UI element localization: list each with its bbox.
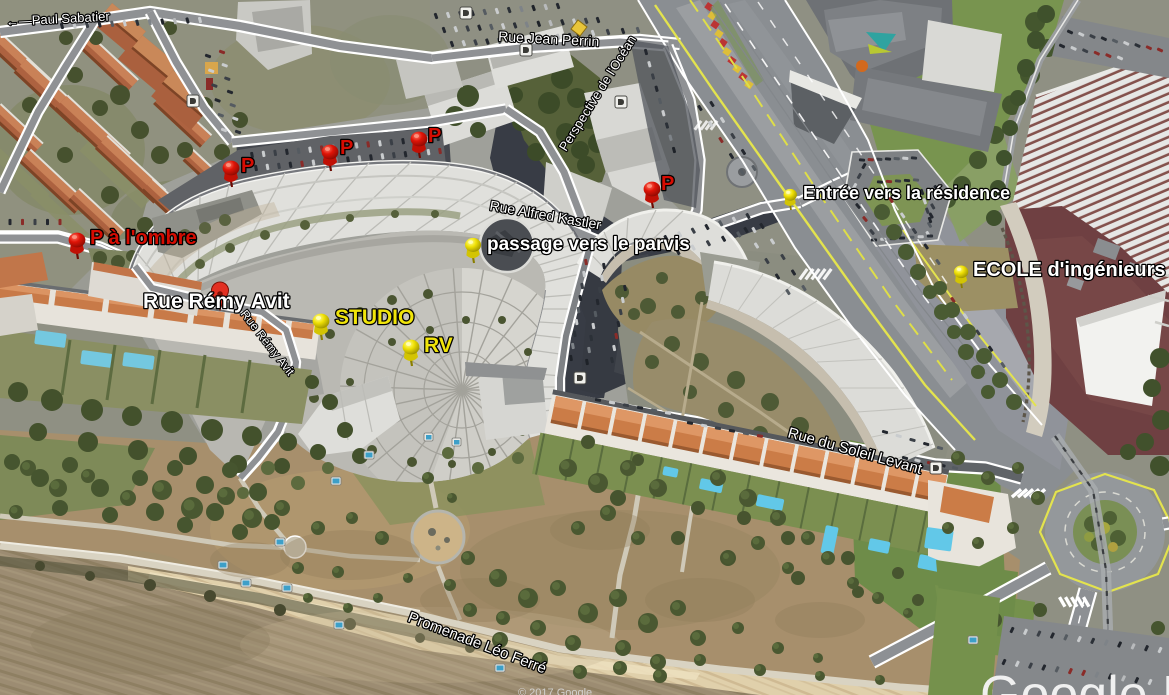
svg-text:Google Earth: Google Earth <box>980 666 1169 695</box>
svg-text:P: P <box>241 155 254 177</box>
svg-text:P à l'ombre: P à l'ombre <box>90 227 197 249</box>
svg-text:ECOLE d'ingénieurs: ECOLE d'ingénieurs <box>973 259 1166 281</box>
svg-text:passage vers le parvis: passage vers le parvis <box>487 234 690 255</box>
svg-text:P: P <box>661 173 674 195</box>
svg-text:Entrée vers la résidence: Entrée vers la résidence <box>803 183 1010 203</box>
svg-text:RV: RV <box>424 334 453 357</box>
svg-text:STUDIO: STUDIO <box>335 306 414 329</box>
svg-text:P: P <box>428 125 441 147</box>
svg-text:P: P <box>340 137 353 159</box>
svg-text:© 2017 Google: © 2017 Google <box>518 687 592 695</box>
svg-text:Rue Rémy Avit: Rue Rémy Avit <box>143 290 290 313</box>
